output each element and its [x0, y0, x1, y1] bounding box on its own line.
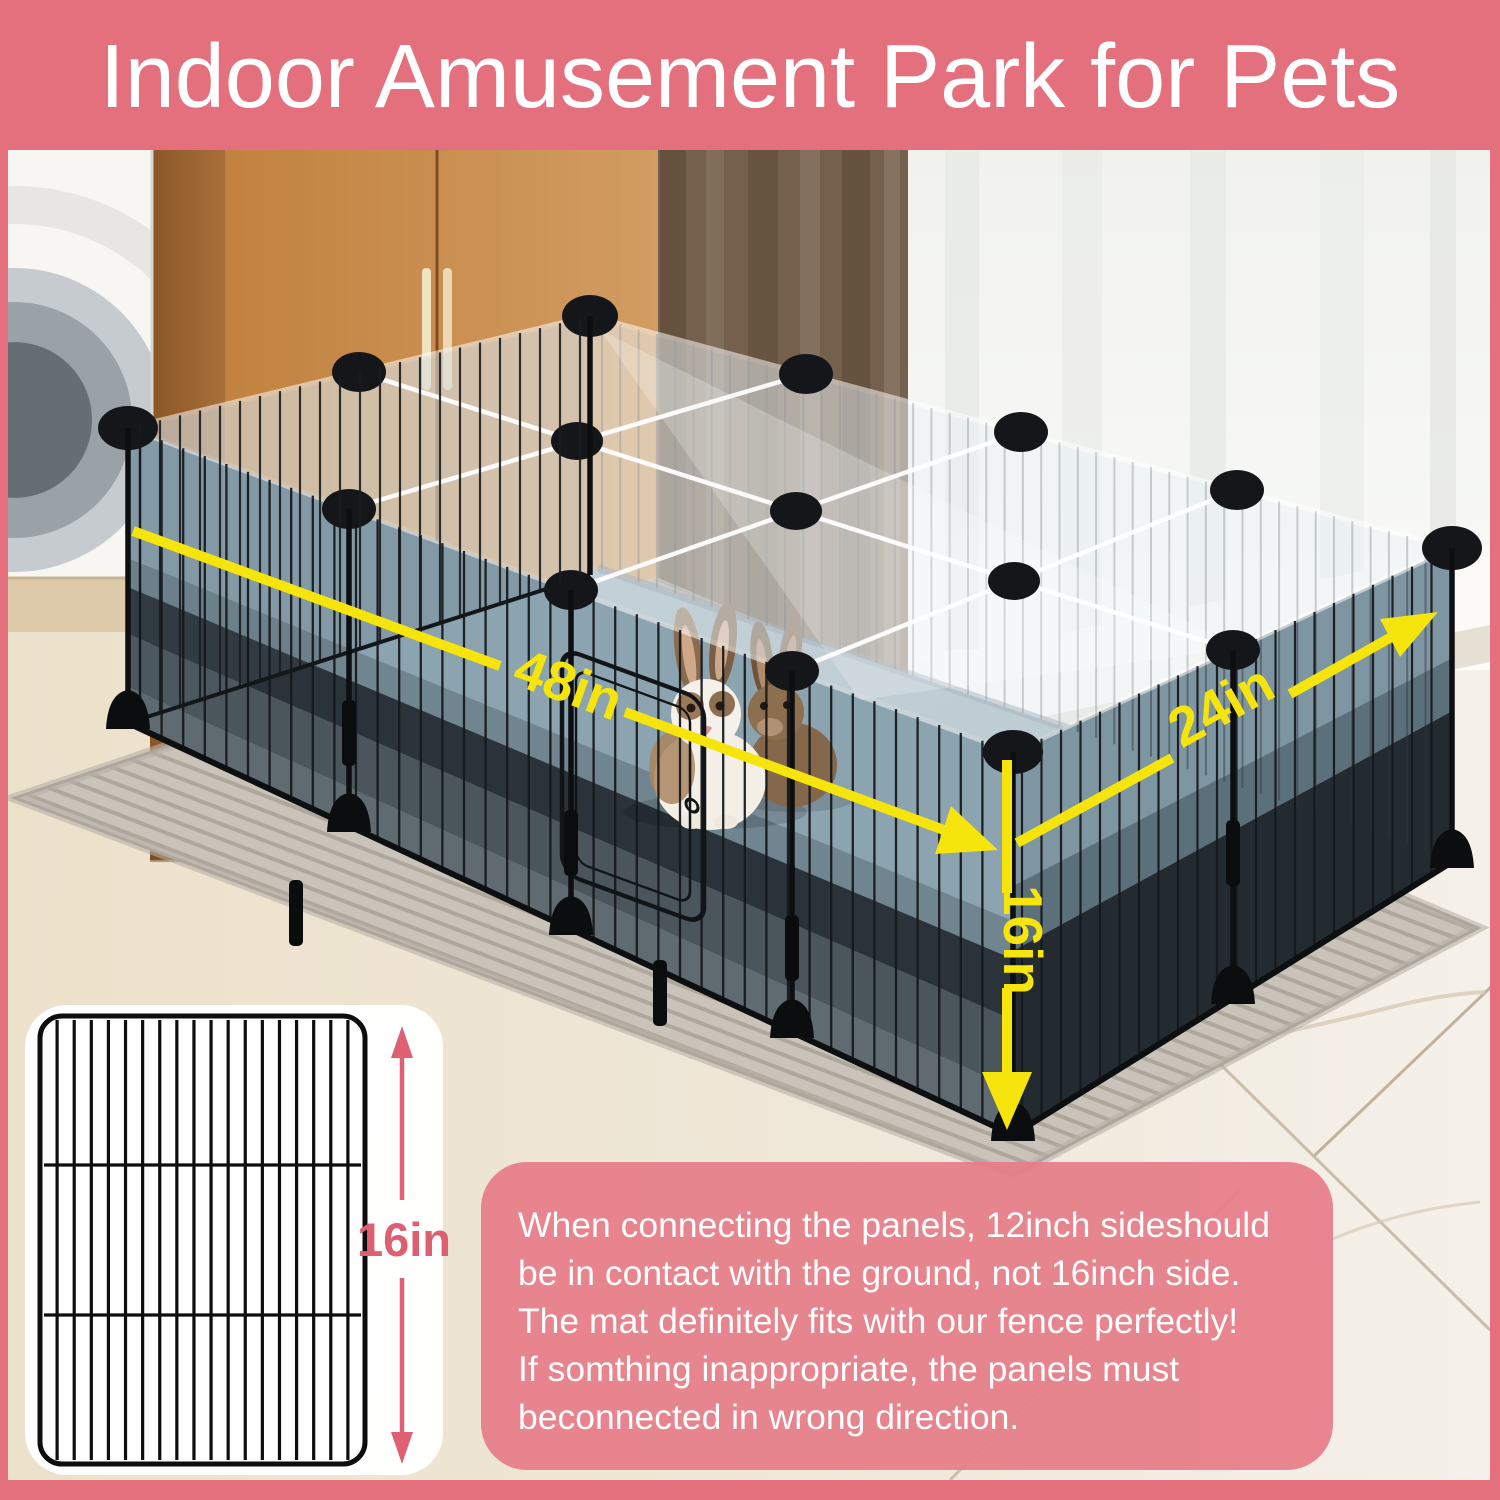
note-line: If somthing inappropriate, the panels mu… — [518, 1349, 1179, 1389]
note-line: beconnected in wrong direction. — [518, 1397, 1019, 1437]
panel-size-card: 16in — [25, 1005, 451, 1475]
panel-height-label: 16in — [357, 1213, 451, 1266]
product-infographic: 48in 24in 16in — [0, 0, 1500, 1500]
dimension-label-16in: 16in — [992, 885, 1054, 995]
note-box: When connecting the panels, 12inch sides… — [481, 1162, 1333, 1470]
room-scene: 48in 24in 16in — [0, 150, 1493, 1480]
note-line: be in contact with the ground, not 16inc… — [518, 1253, 1240, 1293]
title-banner: Indoor Amusement Park for Pets — [100, 27, 1401, 127]
page-title: Indoor Amusement Park for Pets — [100, 27, 1401, 127]
note-line: The mat definitely fits with our fence p… — [518, 1301, 1238, 1341]
note-line: When connecting the panels, 12inch sides… — [518, 1205, 1270, 1245]
